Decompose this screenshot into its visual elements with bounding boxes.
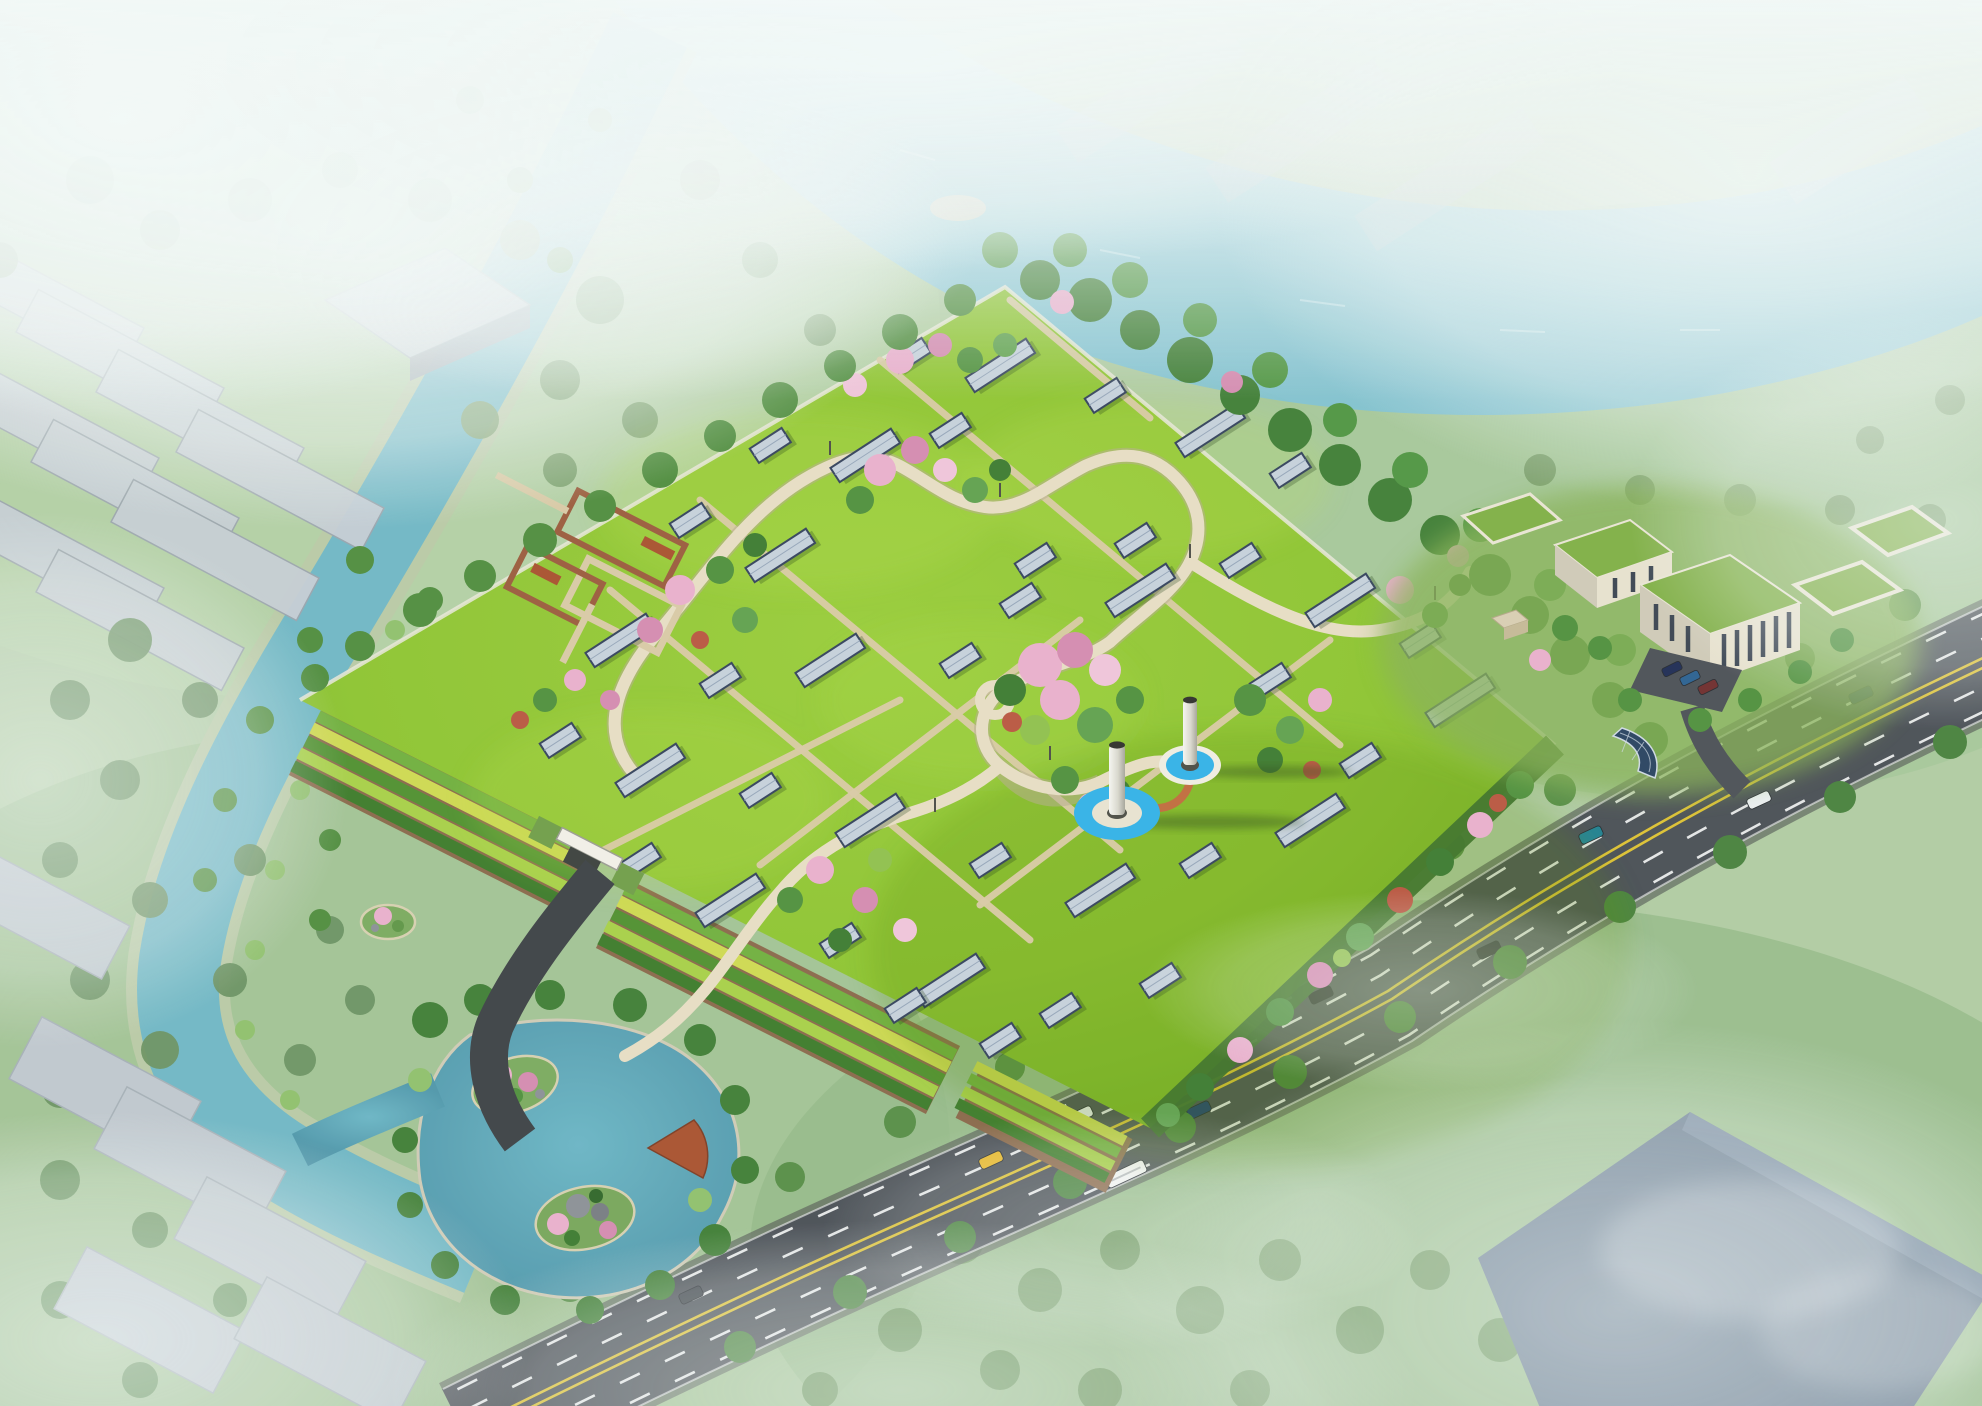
aerial-rendering-canvas bbox=[0, 0, 1982, 1406]
fog-layer bbox=[0, 0, 1982, 1406]
global-haze bbox=[0, 0, 1982, 1406]
scene-svg bbox=[0, 0, 1982, 1406]
